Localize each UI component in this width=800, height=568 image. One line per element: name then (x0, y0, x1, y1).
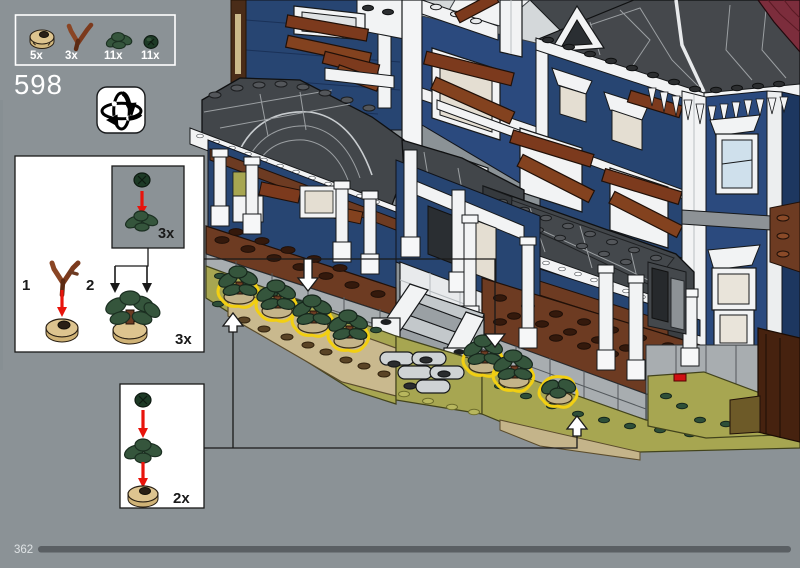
svg-text:3x: 3x (158, 226, 174, 242)
svg-text:1: 1 (22, 277, 30, 294)
svg-text:5x: 5x (30, 50, 43, 62)
svg-text:3x: 3x (175, 331, 192, 348)
svg-text:362: 362 (14, 544, 33, 556)
svg-text:2x: 2x (173, 490, 190, 507)
svg-text:3x: 3x (65, 50, 78, 62)
svg-text:11x: 11x (104, 50, 123, 62)
svg-text:2: 2 (86, 277, 94, 294)
svg-text:11x: 11x (141, 50, 160, 62)
svg-text:598: 598 (14, 69, 63, 100)
